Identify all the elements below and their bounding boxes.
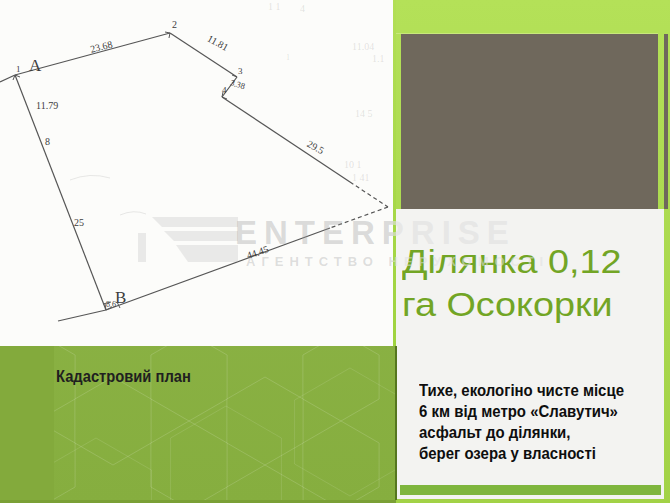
svg-text:B: B [115, 288, 126, 307]
svg-text:A: A [29, 56, 42, 75]
svg-text:44.45: 44.45 [245, 243, 270, 260]
svg-text:2: 2 [172, 19, 177, 30]
svg-text:1: 1 [286, 53, 290, 62]
svg-text:25: 25 [74, 217, 84, 228]
svg-text:11.04: 11.04 [352, 41, 374, 52]
svg-text:1: 1 [16, 64, 21, 74]
svg-text:10 1: 10 1 [344, 159, 362, 170]
svg-text:3.38: 3.38 [229, 77, 246, 91]
svg-text:1 1: 1 1 [268, 1, 281, 12]
svg-text:14 5: 14 5 [355, 108, 373, 119]
svg-text:4: 4 [300, 3, 305, 14]
svg-text:29.5: 29.5 [305, 138, 326, 156]
svg-text:1 41: 1 41 [352, 172, 370, 183]
svg-text:3: 3 [238, 66, 243, 76]
svg-text:11.81: 11.81 [206, 33, 231, 53]
svg-text:23.68: 23.68 [89, 39, 113, 55]
svg-text:11.79: 11.79 [36, 100, 58, 111]
svg-text:1.1: 1.1 [372, 53, 385, 64]
svg-text:8: 8 [45, 136, 50, 147]
